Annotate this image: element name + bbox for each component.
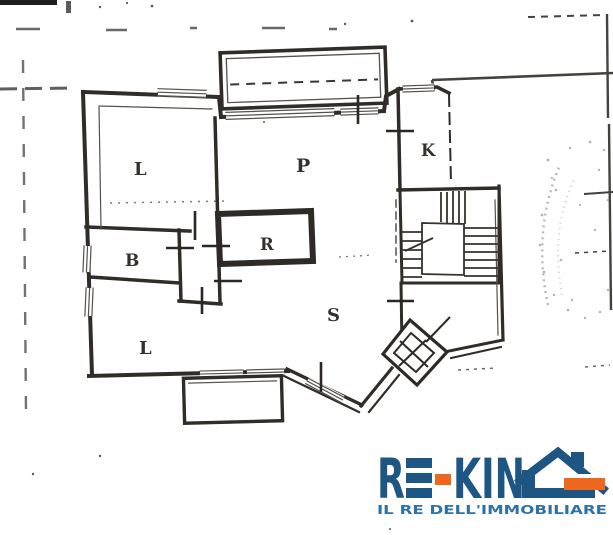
dashed-boundary-left-h — [0, 88, 73, 89]
staircase — [396, 191, 499, 277]
dash-stub — [575, 251, 611, 253]
dotted-floor-line — [458, 365, 610, 370]
window — [341, 106, 378, 115]
dashed-boundary-left — [23, 60, 26, 412]
top-balcony — [220, 47, 387, 109]
fold-line — [110, 201, 230, 203]
window — [81, 246, 91, 272]
page-edge-line — [607, 14, 611, 310]
wall-inner-line — [99, 106, 212, 229]
room-label-living1: L — [134, 159, 147, 180]
bottom-balcony — [183, 376, 282, 424]
logo-letter-e-bars — [406, 458, 432, 498]
interior-walls — [86, 106, 221, 304]
kitchen-dashed-partition — [449, 95, 451, 183]
dashed-line-top-right — [528, 15, 604, 17]
logo-house-chimney — [571, 452, 584, 467]
logo-letters-kin: KIN — [453, 447, 525, 511]
logo-g-bar — [564, 478, 605, 490]
logo-e-bar — [406, 488, 432, 498]
scan-mark — [0, 0, 57, 5]
logo-letter-r: R — [377, 447, 405, 511]
stamp-smudge — [539, 141, 610, 320]
kitchen-walls — [398, 87, 451, 190]
room-label-bath: B — [125, 251, 139, 271]
logo-tagline: IL RE DELL'IMMOBILIARE — [377, 503, 607, 517]
window — [403, 83, 434, 92]
reking-logo: R KIN IL RE DELL'IMMOBILIARE — [377, 447, 608, 517]
dashed-line-top — [16, 28, 337, 30]
scan-mark — [66, 1, 71, 13]
logo-house-g — [520, 452, 608, 498]
boundary-line-right — [432, 73, 613, 90]
logo-gap — [560, 474, 608, 478]
room-label-p: P — [296, 155, 310, 177]
room-label-storage: R — [260, 235, 274, 254]
logo-e-bar — [406, 473, 432, 483]
fold-line — [339, 255, 374, 257]
room-label-living-s: S — [327, 305, 340, 326]
logo-hyphen — [435, 474, 451, 485]
scanned-floorplan-page: L P K B R S L R KIN IL RE DELL'IMMOBILIA… — [0, 0, 613, 535]
elevator — [383, 317, 450, 385]
window — [83, 288, 93, 316]
window — [158, 87, 206, 98]
stair-direction-line — [405, 238, 433, 251]
room-label-living2: L — [139, 338, 152, 359]
floorplan-drawing: L P K B R S L R KIN IL RE DELL'IMMOBILIA… — [0, 0, 613, 535]
room-label-kitchen: K — [421, 141, 436, 160]
logo-e-bar — [406, 458, 432, 468]
